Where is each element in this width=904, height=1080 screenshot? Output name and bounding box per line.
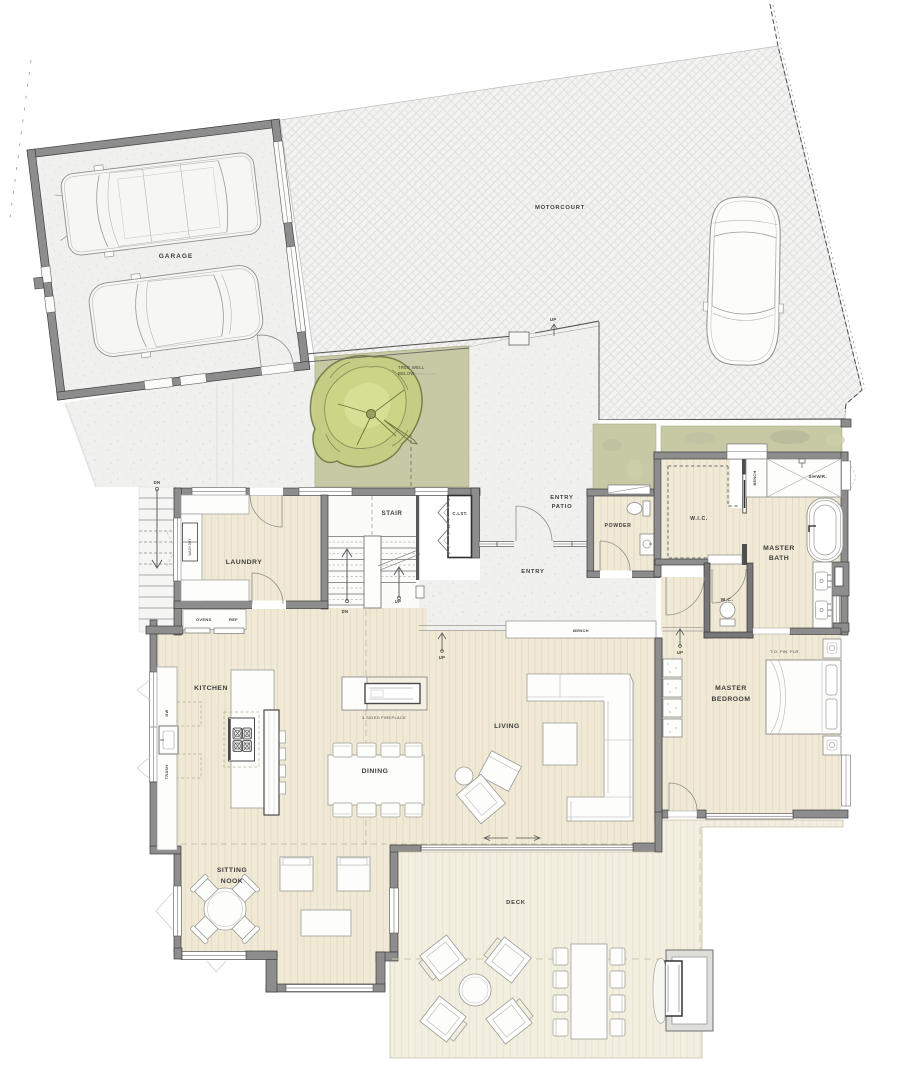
- svg-text:UP: UP: [550, 317, 556, 322]
- svg-text:MASTER: MASTER: [715, 685, 747, 692]
- svg-text:DN: DN: [154, 480, 161, 485]
- svg-text:ENTRY: ENTRY: [521, 569, 544, 575]
- svg-text:STAIR: STAIR: [382, 510, 403, 517]
- svg-text:BENCH: BENCH: [573, 628, 589, 633]
- svg-text:TREE WELL: TREE WELL: [398, 365, 425, 370]
- svg-text:DW: DW: [165, 709, 169, 716]
- svg-text:DINING: DINING: [362, 768, 389, 775]
- svg-text:SHWR.: SHWR.: [809, 474, 828, 480]
- svg-text:POWDER: POWDER: [605, 523, 632, 529]
- svg-text:UP: UP: [395, 599, 401, 604]
- svg-text:W.I.C.: W.I.C.: [690, 516, 708, 522]
- svg-text:MOTORCOURT: MOTORCOURT: [535, 205, 585, 211]
- svg-text:KITCHEN: KITCHEN: [194, 685, 228, 692]
- svg-text:UP: UP: [439, 655, 445, 660]
- svg-text:MASTER: MASTER: [763, 545, 795, 552]
- svg-text:SITTING: SITTING: [217, 867, 247, 874]
- svg-text:UP: UP: [677, 650, 683, 655]
- svg-text:REF: REF: [229, 617, 238, 622]
- svg-text:LAUNDRY: LAUNDRY: [226, 559, 262, 566]
- svg-text:BELOW: BELOW: [398, 371, 415, 376]
- svg-text:GARAGE: GARAGE: [159, 253, 194, 260]
- svg-text:3-SIDED FIREPLACE: 3-SIDED FIREPLACE: [362, 715, 406, 720]
- svg-text:DECK: DECK: [506, 900, 526, 906]
- svg-text:ENTRY: ENTRY: [550, 495, 573, 501]
- svg-text:C.LST.: C.LST.: [452, 511, 467, 516]
- svg-text:BEDROOM: BEDROOM: [712, 696, 751, 703]
- svg-text:WASH DRY: WASH DRY: [188, 538, 192, 556]
- svg-text:BATH: BATH: [769, 555, 789, 562]
- svg-text:PATIO: PATIO: [552, 504, 573, 510]
- svg-text:TRASH: TRASH: [165, 765, 169, 780]
- svg-text:W.C.: W.C.: [721, 597, 734, 603]
- svg-text:T.O. FIN. FLR.: T.O. FIN. FLR.: [770, 649, 800, 654]
- svg-text:NOOK: NOOK: [221, 878, 243, 885]
- svg-text:BENCH: BENCH: [753, 470, 757, 485]
- svg-text:OVENS: OVENS: [196, 617, 212, 622]
- svg-text:LIVING: LIVING: [494, 723, 520, 730]
- svg-text:DN: DN: [342, 609, 349, 614]
